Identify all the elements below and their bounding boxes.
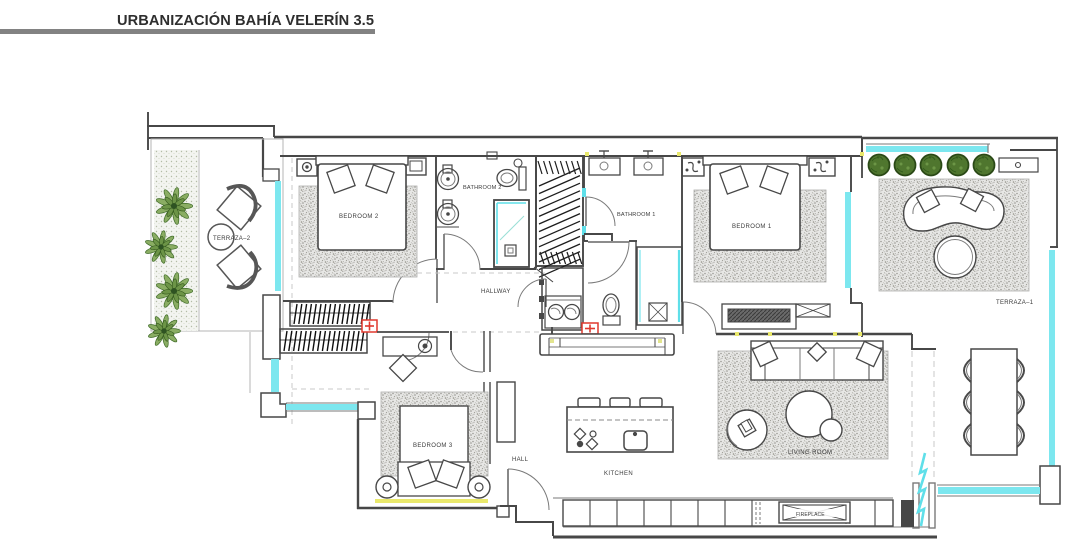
svg-text:HALL: HALL xyxy=(512,457,529,463)
svg-text:BEDROOM 1: BEDROOM 1 xyxy=(732,224,772,230)
svg-text:KITCHEN: KITCHEN xyxy=(604,471,633,477)
svg-text:TERRAZA–2: TERRAZA–2 xyxy=(213,236,251,242)
svg-text:BATHROOM 1: BATHROOM 1 xyxy=(617,212,656,218)
svg-text:URBANIZACIÓN BAHÍA VELERÍN 3.5: URBANIZACIÓN BAHÍA VELERÍN 3.5 xyxy=(117,11,374,29)
svg-text:LIVING ROOM: LIVING ROOM xyxy=(788,450,832,456)
svg-text:BEDROOM 3: BEDROOM 3 xyxy=(413,443,453,449)
svg-text:BEDROOM 2: BEDROOM 2 xyxy=(339,214,379,220)
svg-text:BATHROOM 2: BATHROOM 2 xyxy=(463,185,502,191)
svg-text:TERRAZA–1: TERRAZA–1 xyxy=(996,300,1034,306)
svg-text:FIREPLACE: FIREPLACE xyxy=(796,512,825,518)
svg-text:HALLWAY: HALLWAY xyxy=(481,289,511,295)
